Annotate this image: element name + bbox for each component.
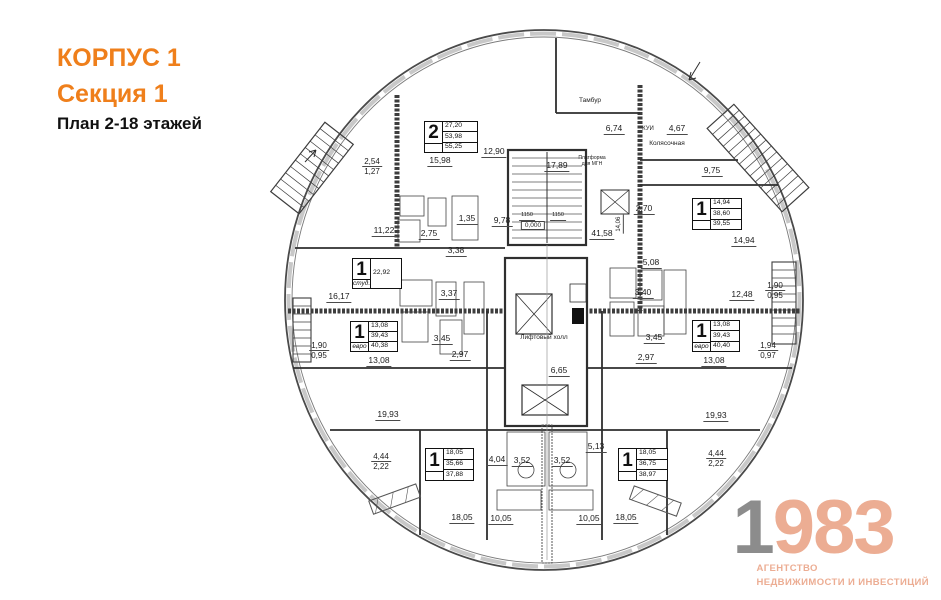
stacked-dimension-label: 1,900,95 — [765, 281, 785, 300]
dimension-label: 14,94 — [731, 236, 756, 247]
apartment-type: 1 — [353, 259, 370, 279]
dimension-label: 5,13 — [586, 442, 607, 453]
room-label: Лифтовый холл — [520, 334, 567, 341]
apartment-area-value: 22,92 — [371, 259, 401, 288]
apartment-type: 1 — [619, 449, 636, 471]
dimension-label: 17,89 — [544, 161, 569, 172]
room-label: Платформа для МГН — [574, 156, 610, 168]
stacked-dimension-label: 2,541,27 — [362, 157, 382, 176]
dimension-label: 2,97 — [450, 350, 471, 361]
apartment-card: 227,2053,9855,25 — [424, 121, 478, 153]
apartment-card: 1евро13,0839,4340,40 — [692, 320, 740, 352]
section-title: Секция 1 — [57, 76, 202, 112]
dimension-label: 12,90 — [481, 147, 506, 158]
apartment-card: 118,0536,7538,97 — [618, 448, 668, 481]
apartment-area-value: 35,66 — [444, 459, 473, 470]
dimension-label: 10,05 — [488, 514, 513, 525]
logo-digits-accent: 983 — [773, 485, 894, 570]
apartment-card: 114,9438,6039,55 — [692, 198, 742, 230]
logo-year: 1983 — [733, 497, 929, 559]
dimension-label: 2,97 — [636, 353, 657, 364]
apartment-area-value: 14,94 — [711, 199, 741, 208]
apartment-areas: 13,0839,4340,38 — [368, 322, 397, 351]
dimension-label: 3,45 — [432, 334, 453, 345]
dimension-label: 2,70 — [634, 204, 655, 215]
apartment-type: 2 — [425, 122, 442, 143]
apartment-subtype — [426, 471, 443, 480]
apartment-card: 1евро13,0839,4340,38 — [350, 321, 398, 352]
dimension-label: 18,05 — [449, 513, 474, 524]
logo-tagline-line1: АГЕНТСТВО — [757, 563, 818, 574]
dimension-label: 3,52 — [512, 456, 533, 467]
dimension-label: 10,05 — [576, 514, 601, 525]
apartment-area-value: 37,88 — [444, 469, 473, 480]
apartment-area-value: 13,08 — [369, 322, 397, 331]
apartment-type: 1 — [693, 199, 710, 220]
dimension-label: 9,75 — [702, 166, 723, 177]
stacked-dimension-label: 1,900,95 — [309, 341, 329, 360]
dimension-label: 13,08 — [366, 356, 391, 367]
apartment-subtype — [693, 220, 710, 229]
apartment-card: 1студ.22,92 — [352, 258, 402, 289]
apartment-areas: 18,0536,7538,97 — [636, 449, 667, 480]
logo-digit-gray: 1 — [733, 485, 773, 570]
dimension-label: 13,08 — [701, 356, 726, 367]
apartment-area-value: 18,05 — [637, 449, 667, 459]
room-label: КУИ — [642, 126, 654, 133]
agency-logo: 1983 АГЕНТСТВО НЕДВИЖИМОСТИ И ИНВЕСТИЦИЙ — [733, 497, 929, 590]
stacked-dimension-label: 4,442,22 — [371, 452, 391, 471]
dimension-label: 4,04 — [487, 455, 508, 466]
dimension-label: 3,37 — [439, 289, 460, 300]
apartment-area-value: 36,75 — [637, 459, 667, 470]
apartment-area-value: 39,43 — [711, 330, 739, 340]
dimension-label: 2,75 — [419, 229, 440, 240]
dimension-label: 3,45 — [644, 333, 665, 344]
dimension-label: 41,58 — [589, 229, 614, 240]
apartment-subtype — [619, 471, 636, 480]
apartment-area-value: 40,38 — [369, 341, 397, 351]
dimension-label: 19,93 — [375, 410, 400, 421]
apartment-areas: 22,92 — [370, 259, 401, 288]
apartment-area-value: 39,55 — [711, 219, 741, 229]
dimension-label: 3,52 — [552, 456, 573, 467]
dimension-label: 4,67 — [667, 124, 688, 135]
dimension-label: 11,22 — [372, 226, 397, 237]
dimension-label: 5,08 — [641, 258, 662, 269]
korpus-title: КОРПУС 1 — [57, 40, 202, 76]
dimension-label: 6,65 — [549, 366, 570, 377]
dimension-label: 14,06 — [616, 215, 624, 234]
apartment-type: 1 — [693, 321, 710, 342]
dimension-label: 19,93 — [703, 411, 728, 422]
apartment-area-value: 53,98 — [443, 131, 477, 141]
title-block: КОРПУС 1 Секция 1 План 2-18 этажей — [57, 40, 202, 135]
logo-tagline-line2: НЕДВИЖИМОСТИ И ИНВЕСТИЦИЙ — [757, 577, 929, 588]
apartment-subtype: студ. — [353, 279, 370, 288]
apartment-areas: 18,0535,6637,88 — [443, 449, 473, 480]
dimension-label: 1,35 — [457, 214, 478, 225]
dimension-label: 9,78 — [492, 216, 513, 227]
room-label: 0,000 — [521, 221, 545, 230]
dimension-label: 12,48 — [729, 290, 754, 301]
apartment-areas: 27,2053,9855,25 — [442, 122, 477, 152]
apartment-subtype — [425, 143, 442, 152]
apartment-area-value: 18,05 — [444, 449, 473, 459]
apartment-area-value: 38,60 — [711, 208, 741, 218]
dimension-label: 1150 — [550, 213, 566, 221]
apartment-area-value: 38,97 — [637, 469, 667, 480]
dimension-label: 3,40 — [633, 288, 654, 299]
stacked-dimension-label: 1,940,97 — [758, 341, 778, 360]
plan-title: План 2-18 этажей — [57, 113, 202, 136]
apartment-areas: 14,9438,6039,55 — [710, 199, 741, 229]
apartment-areas: 13,0839,4340,40 — [710, 321, 739, 351]
apartment-type: 1 — [351, 322, 368, 342]
room-label: Тамбур — [579, 97, 601, 104]
room-label: Колясочная — [649, 140, 684, 147]
apartment-area-value: 55,25 — [443, 142, 477, 152]
dimension-label: 16,17 — [326, 292, 351, 303]
apartment-subtype: евро — [693, 342, 710, 351]
apartment-area-value: 39,43 — [369, 331, 397, 341]
dimension-label: 6,74 — [604, 124, 625, 135]
dimension-label: 15,98 — [427, 156, 452, 167]
apartment-area-value: 13,08 — [711, 321, 739, 330]
dimension-label: 3,38 — [446, 246, 467, 257]
dimension-label: 1150 — [519, 213, 535, 221]
dimension-label: 18,05 — [613, 513, 638, 524]
stacked-dimension-label: 4,442,22 — [706, 449, 726, 468]
apartment-subtype: евро — [351, 342, 368, 351]
apartment-area-value: 40,40 — [711, 341, 739, 351]
apartment-area-value: 27,20 — [443, 122, 477, 131]
apartment-card: 118,0535,6637,88 — [425, 448, 474, 481]
apartment-type: 1 — [426, 449, 443, 471]
